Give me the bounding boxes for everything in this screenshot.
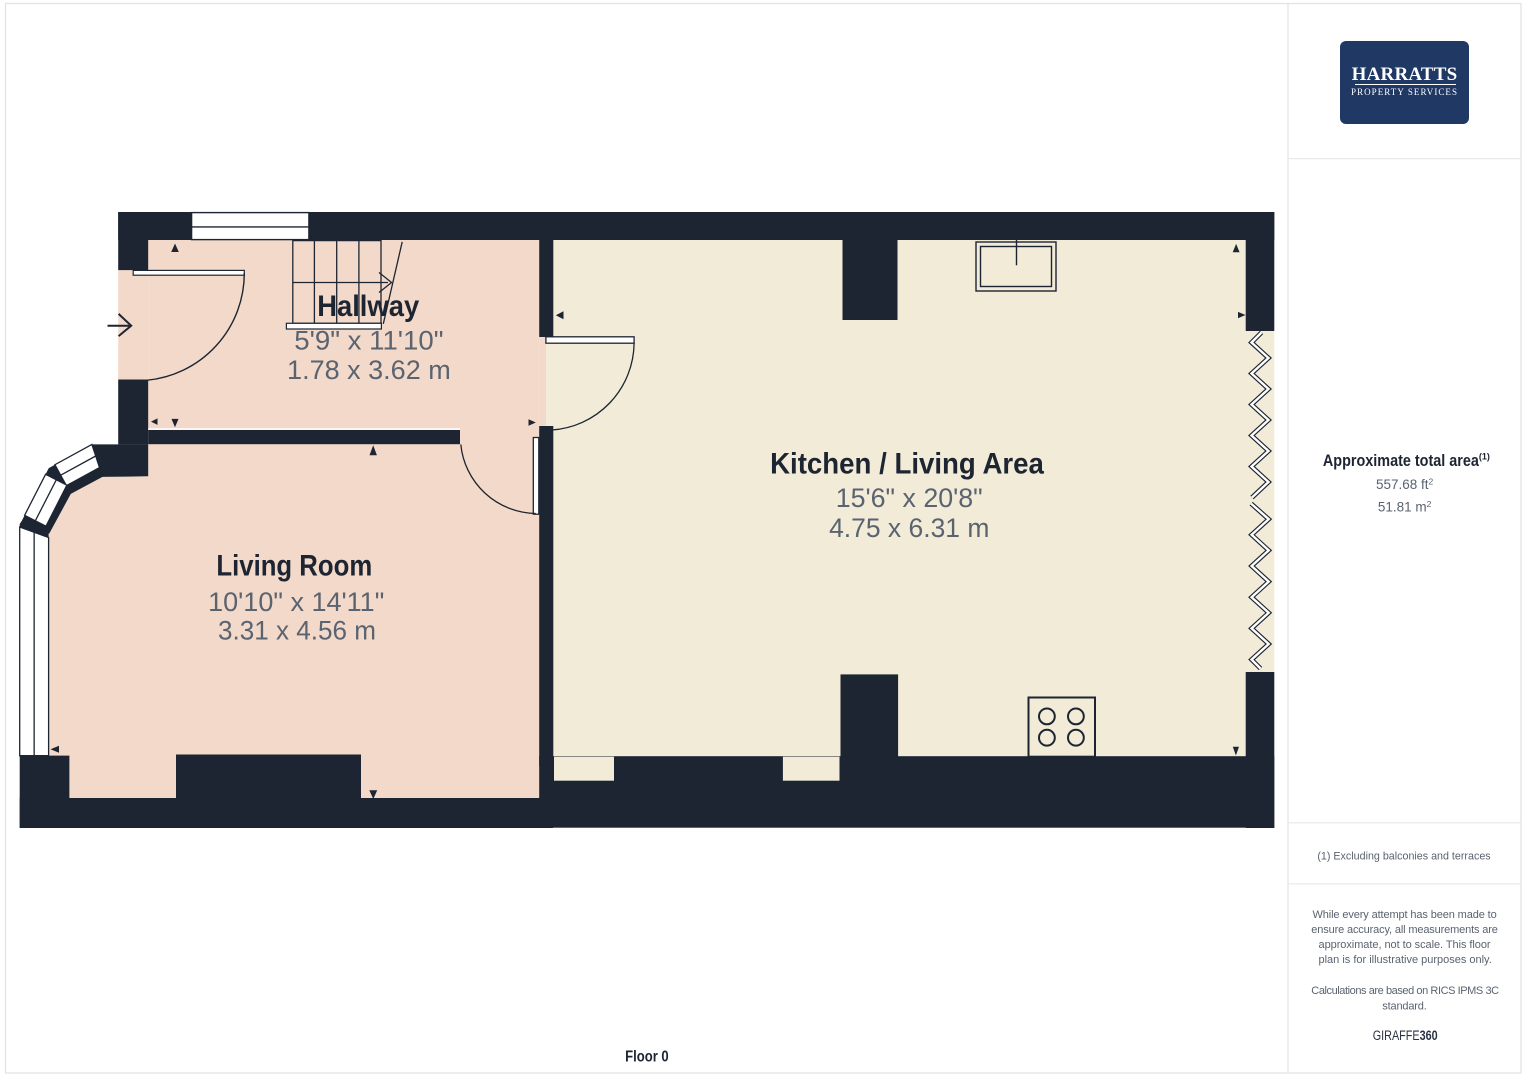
svg-text:ensure accuracy, all measureme: ensure accuracy, all measurements are bbox=[1311, 924, 1498, 936]
svg-text:Living Room: Living Room bbox=[216, 549, 372, 582]
svg-text:557.68 ft2: 557.68 ft2 bbox=[1376, 477, 1434, 493]
svg-text:Kitchen / Living Area: Kitchen / Living Area bbox=[770, 447, 1044, 480]
svg-text:15'6" x 20'8": 15'6" x 20'8" bbox=[836, 483, 983, 513]
svg-text:5'9" x 11'10": 5'9" x 11'10" bbox=[294, 325, 443, 355]
svg-text:Calculations are based on RICS: Calculations are based on RICS IPMS 3C bbox=[1311, 985, 1499, 997]
svg-text:51.81 m2: 51.81 m2 bbox=[1378, 499, 1432, 515]
svg-text:While every attempt has been m: While every attempt has been made to bbox=[1313, 909, 1497, 921]
svg-text:GIRAFFE360: GIRAFFE360 bbox=[1373, 1028, 1438, 1043]
svg-text:1.78 x 3.62 m: 1.78 x 3.62 m bbox=[287, 355, 451, 385]
svg-text:approximate, not to scale. Thi: approximate, not to scale. This floor bbox=[1319, 939, 1491, 951]
svg-text:10'10" x 14'11": 10'10" x 14'11" bbox=[208, 587, 384, 617]
svg-text:3.31 x 4.56 m: 3.31 x 4.56 m bbox=[218, 615, 376, 645]
svg-text:Approximate total area(1): Approximate total area(1) bbox=[1323, 451, 1490, 470]
svg-text:plan is for illustrative purpo: plan is for illustrative purposes only. bbox=[1319, 954, 1492, 966]
svg-text:Hallway: Hallway bbox=[317, 290, 419, 323]
svg-text:(1) Excluding balconies and te: (1) Excluding balconies and terraces bbox=[1317, 851, 1491, 863]
svg-text:standard.: standard. bbox=[1382, 1000, 1427, 1012]
svg-text:4.75 x 6.31 m: 4.75 x 6.31 m bbox=[829, 513, 989, 543]
svg-text:Floor 0: Floor 0 bbox=[625, 1048, 669, 1065]
